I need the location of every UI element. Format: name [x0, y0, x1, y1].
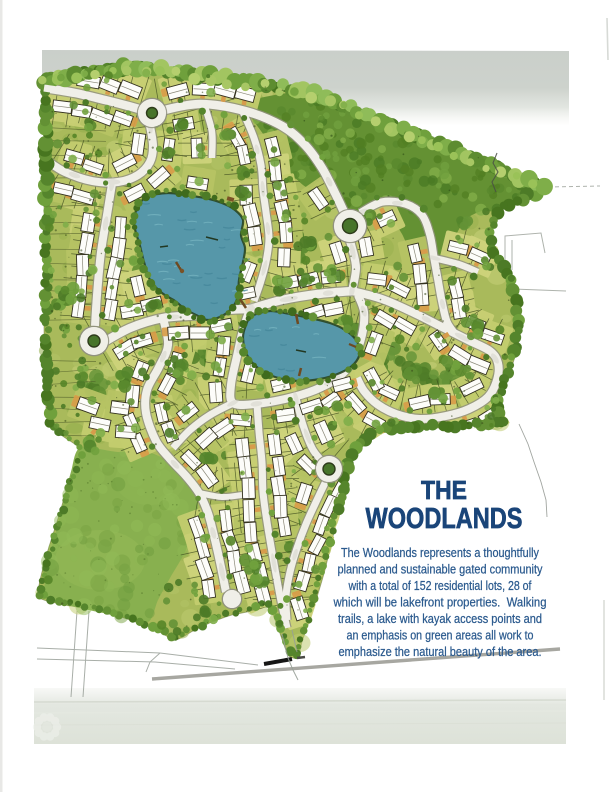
svg-text:planned and sustainable gated: planned and sustainable gated community: [338, 562, 543, 577]
svg-text:The Woodlands represents a tho: The Woodlands represents a thoughtfully: [341, 545, 539, 560]
svg-text:emphasize the natural beauty o: emphasize the natural beauty of the area…: [339, 644, 542, 659]
svg-text:trails, a lake with kayak acce: trails, a lake with kayak access points …: [338, 611, 542, 626]
svg-text:THE: THE: [421, 475, 467, 505]
svg-text:WOODLANDS: WOODLANDS: [366, 503, 523, 535]
svg-text:an emphasis on green areas all: an emphasis on green areas all work to: [347, 628, 534, 643]
svg-text:which will be lakefront proper: which will be lakefront properties. Walk…: [333, 595, 547, 610]
svg-text:with a total of 152 residentia: with a total of 152 residential lots, 28…: [348, 578, 532, 593]
